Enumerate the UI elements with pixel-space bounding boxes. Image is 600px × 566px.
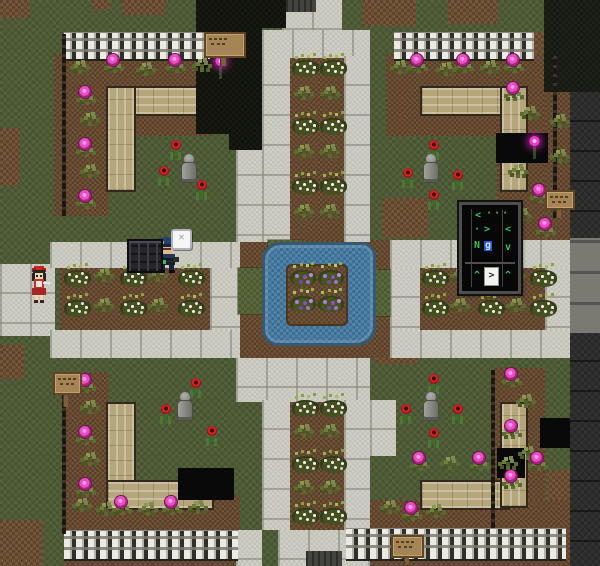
white-flower-bush (530, 300, 557, 317)
pink-flower (402, 508, 422, 522)
grass-tuft (138, 508, 158, 520)
grass-tuft (436, 68, 456, 80)
white-flower-bush (292, 60, 319, 77)
doorway-tile[interactable] (306, 551, 342, 566)
stone-path[interactable] (236, 358, 370, 402)
grass-tuft (188, 506, 208, 518)
grass-tuft (550, 155, 570, 167)
balloon-icon: ✕ (171, 229, 192, 250)
white-flower-bush (320, 178, 347, 195)
grass-tuft (320, 430, 340, 442)
wall-blocks (570, 238, 600, 333)
grass-tuft (294, 92, 314, 104)
white-flower-bush (292, 178, 319, 195)
pink-flower (410, 458, 430, 472)
dirt-patch (0, 520, 42, 566)
grass-tuft (294, 150, 314, 162)
white-flower-bush (320, 456, 347, 473)
panel-glyph: < (505, 225, 511, 235)
picket-fence (64, 530, 238, 561)
grass-tuft (148, 274, 168, 286)
wooden-bench (420, 480, 510, 510)
grass-tuft (70, 66, 90, 78)
white-flower-bush (292, 400, 319, 417)
pink-flower (536, 224, 556, 238)
grass-tuft (520, 112, 540, 124)
red-flower (452, 170, 464, 188)
dirt-patch (0, 128, 20, 186)
pink-flower (76, 92, 96, 106)
dirt-patch (92, 0, 110, 10)
panel-cursor-box: > (484, 267, 499, 286)
wooden-bench (420, 86, 510, 116)
grass-tuft (94, 274, 114, 286)
grass-tuft (80, 170, 100, 182)
purple-flower-plant (318, 296, 344, 312)
panel-selected-glyph: g (484, 241, 492, 251)
white-flower-bush (292, 456, 319, 473)
grass-tuft (148, 304, 168, 316)
grass-tuft (320, 92, 340, 104)
shadow-region (540, 418, 570, 448)
pink-flower (502, 426, 522, 440)
pink-flower (528, 458, 548, 472)
panel-glyph: < (475, 211, 481, 221)
white-flower-bush (530, 270, 557, 287)
grass-tuft (320, 150, 340, 162)
panel-glyph: v (505, 243, 511, 253)
pink-flower (76, 196, 96, 210)
pink-flower (104, 60, 124, 74)
grass-tuft (136, 68, 156, 80)
white-flower-bush (64, 270, 91, 287)
panel-glyph: ^ (474, 271, 480, 281)
white-flower-bush (320, 118, 347, 135)
stone-path[interactable] (262, 30, 370, 58)
shadow-region (178, 468, 234, 500)
grass-tuft (320, 210, 340, 222)
grass-tuft (80, 406, 100, 418)
pink-flower (76, 432, 96, 446)
red-flower (428, 374, 440, 392)
grass-tuft (320, 486, 340, 498)
statue[interactable] (422, 154, 440, 183)
red-flower (428, 428, 440, 446)
grass-tuft (94, 304, 114, 316)
npc-girl[interactable] (27, 264, 51, 304)
grass-tuft (450, 304, 470, 316)
pink-flower (162, 502, 182, 516)
grass-tuft (480, 66, 500, 78)
fence-pole (62, 34, 66, 216)
grass-tuft (80, 458, 100, 470)
red-flower (452, 404, 464, 422)
white-flower-bush (320, 400, 347, 417)
purple-flower-plant (290, 296, 316, 312)
stone-path[interactable] (262, 400, 290, 530)
pink-flower (504, 60, 524, 74)
white-flower-bush (422, 270, 449, 287)
wooden-sign[interactable] (53, 372, 82, 395)
picket-fence (64, 32, 210, 61)
statue[interactable] (422, 392, 440, 421)
dirt-patch (362, 0, 416, 26)
grass-tuft (498, 462, 518, 474)
red-flower (160, 404, 172, 422)
panel-glyph: ^ (505, 271, 511, 281)
statue[interactable] (176, 392, 194, 421)
game-map: < · · · · > < N g v ^ > ^ (0, 0, 600, 566)
girl-sprite (27, 264, 51, 304)
pink-flower (112, 502, 132, 516)
grass-tuft (508, 170, 528, 182)
stone-path[interactable] (344, 400, 370, 530)
purple-flower-plant (290, 270, 316, 286)
grass-tuft (440, 462, 460, 474)
pink-flower (166, 60, 186, 74)
panel-divider (502, 209, 503, 287)
glowing-flower (528, 136, 542, 162)
pink-flower (502, 374, 522, 388)
stone-path[interactable] (262, 56, 290, 242)
wooden-sign[interactable] (391, 535, 424, 558)
stone-path[interactable] (370, 400, 396, 456)
dirt-patch (382, 198, 428, 238)
picket-fence (346, 528, 566, 561)
red-flower (158, 166, 170, 184)
grass-tuft (294, 210, 314, 222)
stone-path[interactable] (210, 268, 240, 330)
white-flower-bush (120, 300, 147, 317)
pink-flower (76, 484, 96, 498)
pink-flower (408, 60, 428, 74)
grass-tuft (550, 120, 570, 132)
red-flower (400, 404, 412, 422)
grass-tuft (380, 506, 400, 518)
dirt-patch (448, 0, 498, 24)
purple-flower-plant (318, 270, 344, 286)
pink-flower (76, 144, 96, 158)
white-flower-bush (64, 300, 91, 317)
panel-glyph: N (474, 241, 480, 251)
wooden-bench (106, 86, 136, 192)
panel-divider (471, 209, 472, 287)
statue[interactable] (180, 154, 198, 183)
shadow-region (229, 134, 262, 150)
wooden-sign[interactable] (545, 190, 575, 210)
red-flower (402, 168, 414, 186)
grass-tuft (80, 118, 100, 130)
grass-tuft (516, 400, 536, 412)
supply-crate[interactable] (127, 239, 163, 273)
fence-pole (491, 370, 495, 528)
grass-tuft (294, 486, 314, 498)
grass-tuft (506, 304, 526, 316)
pink-flower (454, 60, 474, 74)
grass-tuft (72, 504, 92, 516)
red-flower (206, 426, 218, 444)
stone-path[interactable] (344, 56, 370, 242)
panel-glyph: · · · (486, 209, 506, 219)
red-flower (428, 190, 440, 208)
white-flower-bush (422, 300, 449, 317)
grass-tuft (426, 510, 446, 522)
grass-tuft (390, 66, 410, 78)
dirt-patch (0, 345, 24, 379)
white-flower-bush (178, 300, 205, 317)
dirt-patch (122, 0, 166, 15)
white-flower-bush (478, 300, 505, 317)
grass-tile (238, 268, 262, 314)
panel-glyph: · > (474, 225, 489, 235)
pink-flower (502, 476, 522, 490)
stone-path[interactable] (236, 530, 262, 566)
white-flower-bush (292, 508, 319, 525)
wooden-sign[interactable] (204, 32, 246, 58)
white-flower-bush (292, 118, 319, 135)
white-flower-bush (320, 60, 347, 77)
white-flower-bush (320, 508, 347, 525)
stone-path[interactable] (390, 268, 420, 330)
control-panel-sign[interactable]: < · · · · > < N g v ^ > ^ (459, 202, 521, 294)
pink-flower (470, 458, 490, 472)
stone-path[interactable] (390, 330, 570, 358)
panel-divider (465, 262, 515, 264)
shadow-region (262, 0, 286, 28)
dirt-patch (0, 0, 30, 18)
grass-tuft (294, 430, 314, 442)
doorway-tile[interactable] (286, 0, 316, 12)
pink-flower (504, 88, 524, 102)
grass-tuft (192, 64, 212, 76)
stone-path[interactable] (50, 330, 240, 358)
